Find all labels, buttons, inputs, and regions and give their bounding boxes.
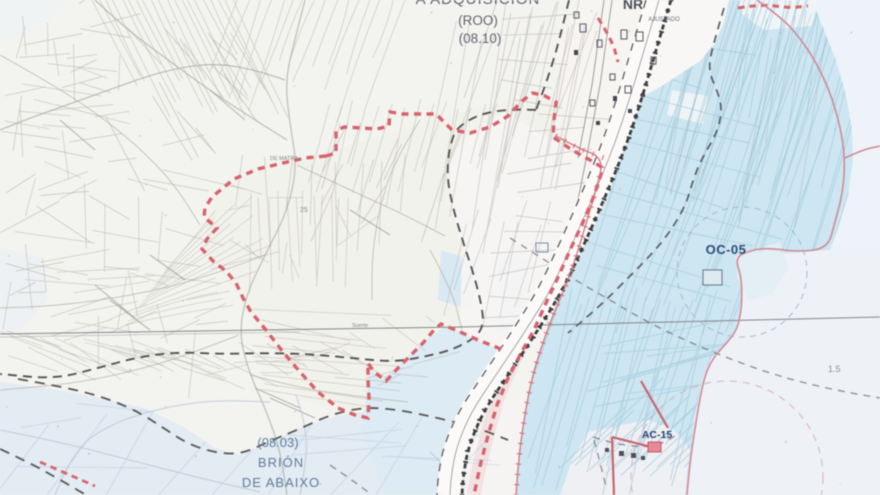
svg-text:(ROO): (ROO) — [458, 13, 498, 28]
svg-text:DE MATRA: DE MATRA — [270, 156, 298, 162]
svg-text:25: 25 — [300, 207, 308, 214]
svg-text:AJUSTADO: AJUSTADO — [648, 17, 680, 23]
svg-text:NR: NR — [623, 0, 643, 12]
svg-text:Suerte: Suerte — [352, 323, 368, 329]
svg-text:(08.10): (08.10) — [459, 31, 502, 46]
svg-text:BRIÓN: BRIÓN — [258, 455, 304, 470]
svg-text:DE ABAIXO: DE ABAIXO — [242, 475, 320, 490]
svg-text:A ADQUISICIÓN: A ADQUISICIÓN — [416, 0, 541, 8]
svg-text:(08.03): (08.03) — [257, 435, 298, 450]
svg-text:OC-05: OC-05 — [706, 242, 747, 257]
svg-text:1.5: 1.5 — [828, 364, 841, 374]
svg-text:AC-15: AC-15 — [642, 429, 673, 441]
